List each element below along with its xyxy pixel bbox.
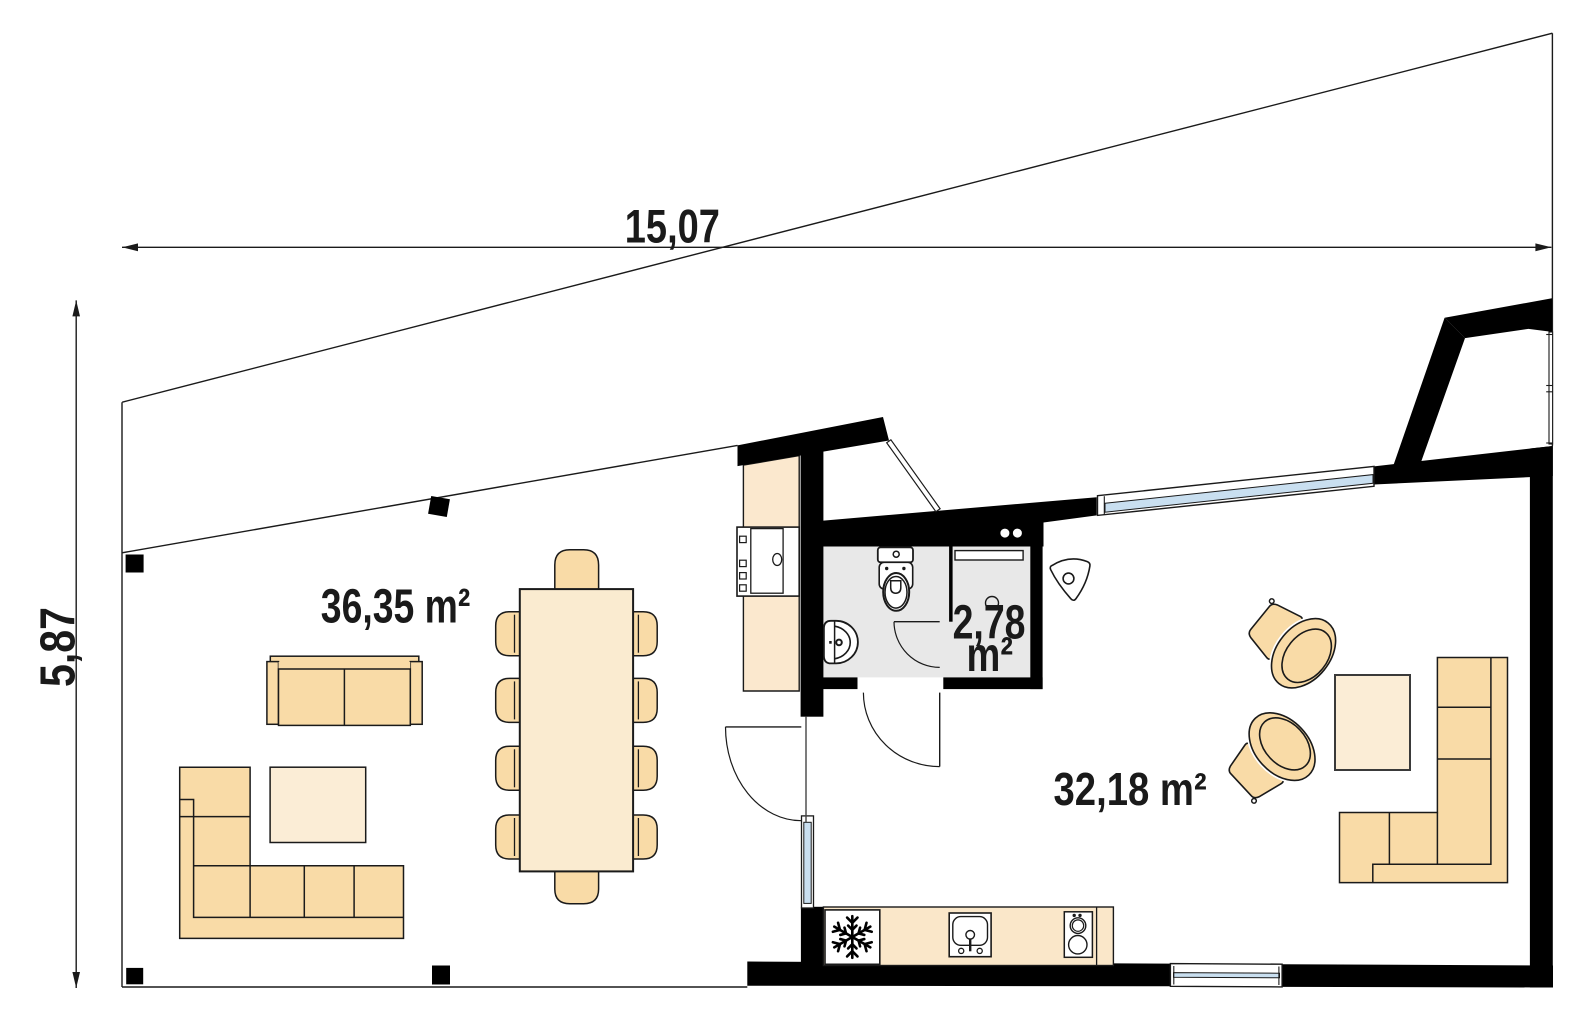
svg-text:5,87: 5,87: [32, 607, 86, 687]
svg-text:m²: m²: [967, 628, 1014, 682]
svg-text:15,07: 15,07: [625, 199, 720, 252]
svg-text:32,18 m²: 32,18 m²: [1054, 763, 1207, 815]
svg-text:36,35 m²: 36,35 m²: [321, 579, 471, 633]
